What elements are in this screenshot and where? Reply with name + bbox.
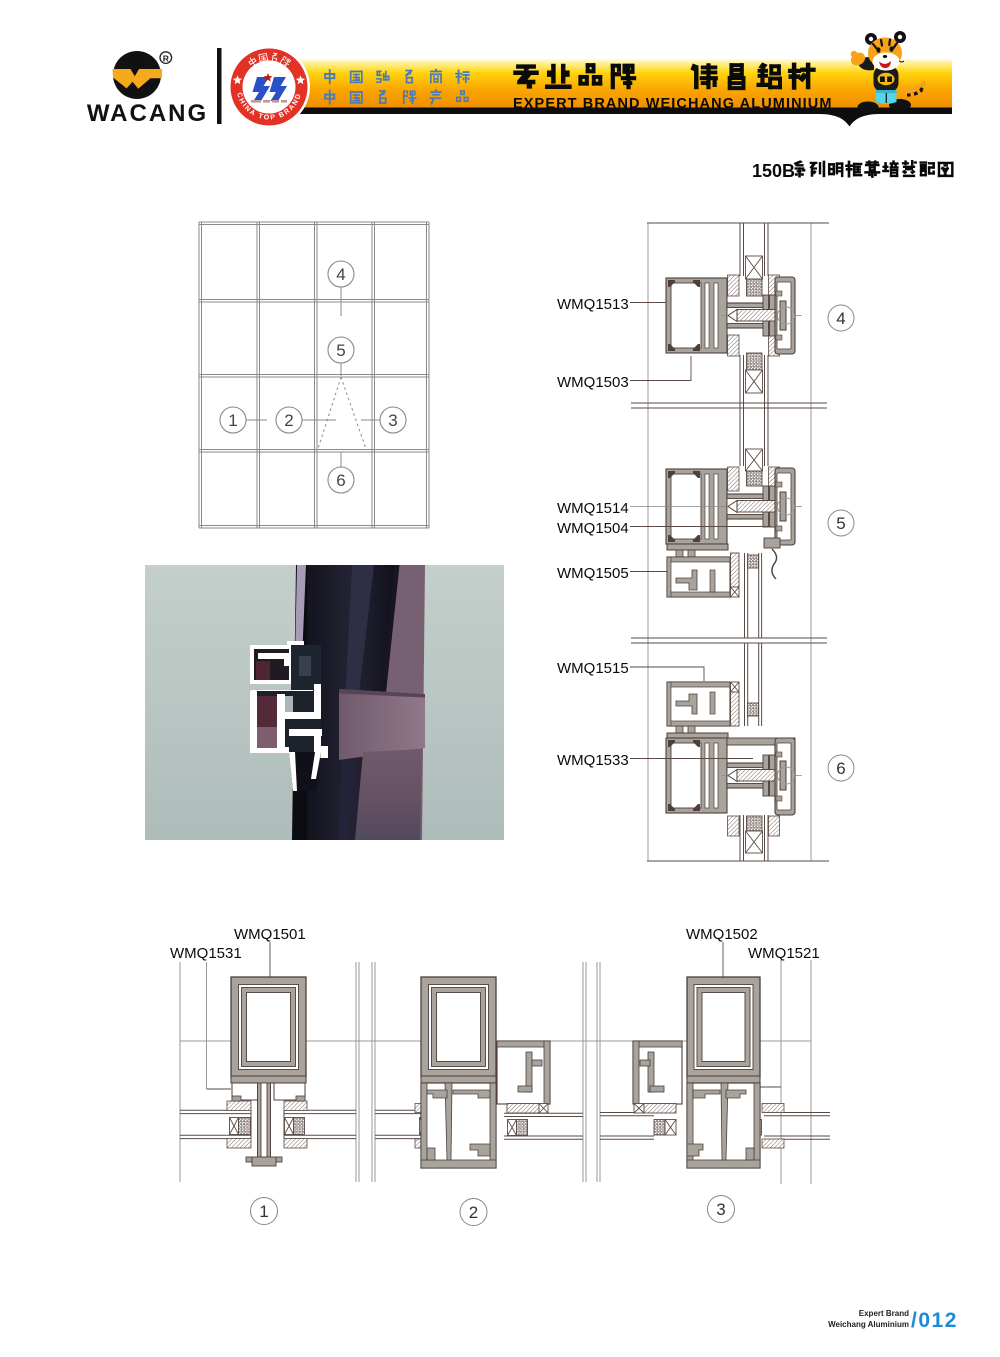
svg-text:WMQ1531: WMQ1531 [170, 945, 242, 962]
svg-text:6: 6 [336, 471, 345, 490]
svg-text:WMQ1503: WMQ1503 [557, 374, 629, 391]
svg-text:1: 1 [228, 411, 237, 430]
svg-text:Expert Brand: Expert Brand [859, 1309, 909, 1318]
svg-text:WMQ1502: WMQ1502 [686, 926, 758, 943]
svg-text:1: 1 [259, 1202, 268, 1221]
svg-text:WMQ1533: WMQ1533 [557, 752, 629, 769]
svg-text:WMQ1504: WMQ1504 [557, 520, 629, 537]
svg-text:6: 6 [836, 759, 845, 778]
svg-text:WACANG: WACANG [87, 100, 208, 127]
svg-text:WMQ1515: WMQ1515 [557, 660, 629, 677]
svg-text:WMQ1514: WMQ1514 [557, 500, 629, 517]
svg-text:Weichang Aluminium: Weichang Aluminium [828, 1320, 909, 1329]
svg-text:WMQ1505: WMQ1505 [557, 565, 629, 582]
svg-text:5: 5 [336, 341, 345, 360]
svg-text:5: 5 [836, 514, 845, 533]
svg-text:2: 2 [469, 1203, 478, 1222]
svg-text:EXPERT BRAND WEICHANG ALUMINIU: EXPERT BRAND WEICHANG ALUMINIUM [513, 96, 833, 112]
svg-text:R: R [163, 54, 169, 64]
svg-text:4: 4 [836, 309, 845, 328]
svg-text:WMQ1521: WMQ1521 [748, 945, 820, 962]
svg-text:2: 2 [284, 411, 293, 430]
svg-text:/012: /012 [911, 1309, 958, 1332]
svg-text:WMQ1501: WMQ1501 [234, 926, 306, 943]
svg-text:4: 4 [336, 265, 345, 284]
svg-text:3: 3 [388, 411, 397, 430]
svg-text:3: 3 [716, 1200, 725, 1219]
svg-text:WMQ1513: WMQ1513 [557, 296, 629, 313]
svg-text:150B: 150B [752, 161, 795, 181]
